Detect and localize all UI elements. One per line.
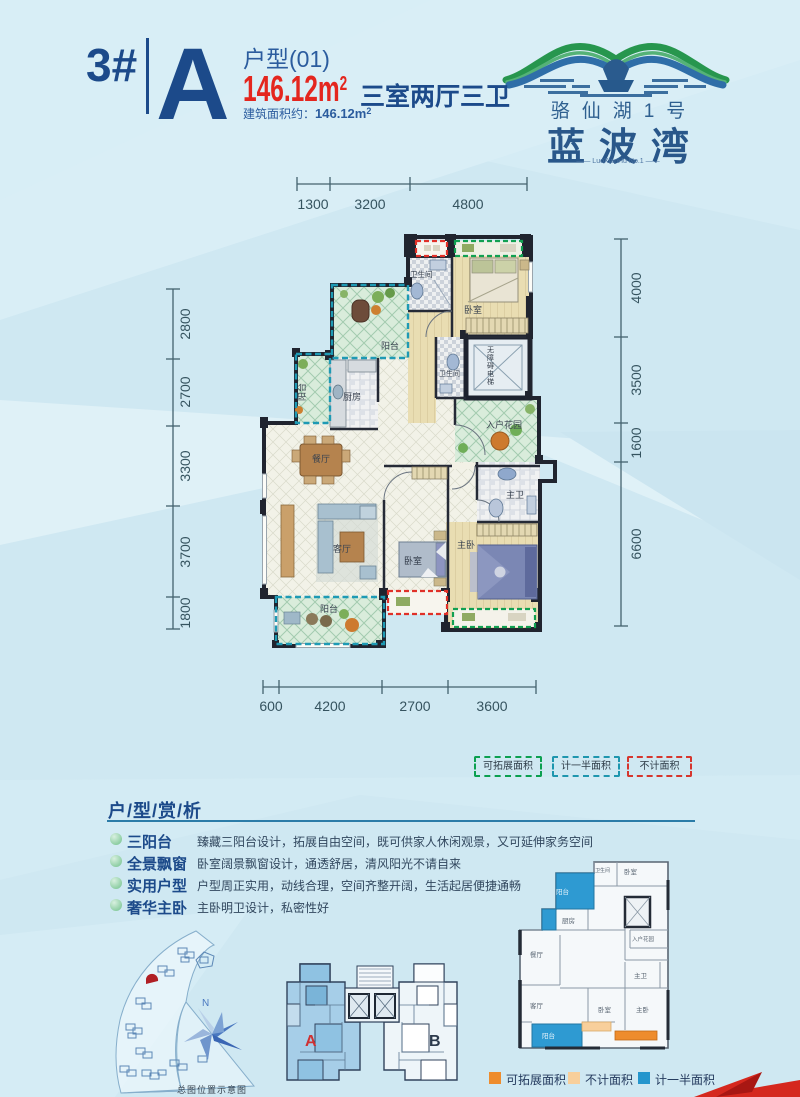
- svg-text:客厅: 客厅: [333, 543, 351, 554]
- svg-text:阳台: 阳台: [556, 887, 569, 896]
- svg-text:卧室: 卧室: [598, 1005, 612, 1014]
- svg-text:卫生间: 卫生间: [595, 867, 610, 874]
- svg-text:4000: 4000: [628, 272, 644, 303]
- svg-text:阳台: 阳台: [296, 383, 307, 401]
- svg-text:厨房: 厨房: [343, 391, 361, 402]
- svg-text:B: B: [429, 1033, 441, 1050]
- svg-text:阳台: 阳台: [381, 340, 399, 351]
- svg-text:1600: 1600: [628, 427, 644, 458]
- svg-text:4200: 4200: [314, 698, 345, 714]
- svg-text:1800: 1800: [177, 597, 193, 628]
- svg-text:A: A: [305, 1033, 317, 1050]
- svg-text:客厅: 客厅: [530, 1001, 544, 1010]
- svg-text:卫生间: 卫生间: [439, 369, 460, 378]
- svg-text:3600: 3600: [476, 698, 507, 714]
- svg-text:阳台: 阳台: [320, 603, 338, 614]
- svg-text:600: 600: [259, 698, 283, 714]
- svg-text:主卫: 主卫: [506, 489, 524, 500]
- svg-text:N: N: [202, 998, 209, 1009]
- svg-text:厨房: 厨房: [562, 916, 575, 925]
- svg-text:卧室: 卧室: [624, 867, 638, 876]
- svg-text:入户花园: 入户花园: [632, 935, 655, 943]
- svg-text:6600: 6600: [628, 528, 644, 559]
- svg-text:入户花园: 入户花园: [486, 419, 522, 430]
- svg-text:4800: 4800: [452, 196, 483, 212]
- svg-text:餐厅: 餐厅: [530, 950, 544, 959]
- svg-text:1300: 1300: [297, 196, 328, 212]
- svg-text:3300: 3300: [177, 450, 193, 481]
- svg-text:卧室: 卧室: [404, 555, 422, 566]
- svg-text:阳台: 阳台: [542, 1031, 555, 1040]
- svg-text:卧室: 卧室: [464, 304, 482, 315]
- svg-text:餐厅: 餐厅: [312, 453, 330, 464]
- svg-text:主卫: 主卫: [634, 971, 648, 980]
- svg-text:2800: 2800: [177, 308, 193, 339]
- svg-text:2700: 2700: [177, 376, 193, 407]
- svg-text:卫生间: 卫生间: [410, 269, 433, 279]
- svg-text:3200: 3200: [354, 196, 385, 212]
- svg-text:2700: 2700: [399, 698, 430, 714]
- svg-text:3700: 3700: [177, 536, 193, 567]
- svg-text:主卧: 主卧: [457, 539, 475, 550]
- svg-text:无障碍电梯: 无障碍电梯: [487, 346, 494, 386]
- svg-text:3500: 3500: [628, 364, 644, 395]
- svg-text:主卧: 主卧: [636, 1005, 650, 1014]
